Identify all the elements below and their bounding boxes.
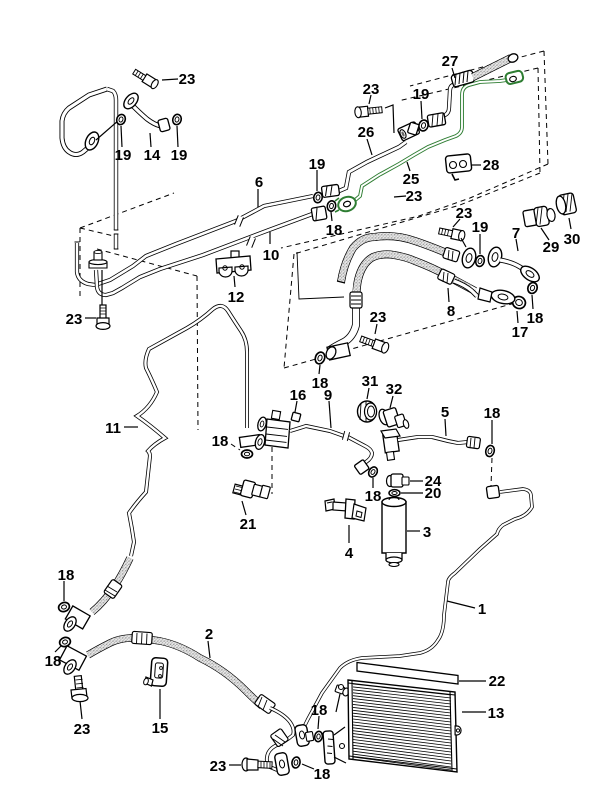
- svg-text:19: 19: [472, 219, 489, 236]
- svg-text:18: 18: [527, 310, 544, 327]
- svg-text:5: 5: [441, 404, 449, 421]
- svg-text:18: 18: [45, 653, 62, 670]
- svg-text:18: 18: [311, 702, 328, 719]
- svg-text:7: 7: [512, 225, 520, 242]
- svg-text:18: 18: [484, 405, 501, 422]
- svg-text:16: 16: [290, 387, 307, 404]
- svg-text:29: 29: [543, 239, 560, 256]
- svg-text:23: 23: [456, 205, 473, 222]
- svg-text:19: 19: [413, 86, 430, 103]
- svg-text:26: 26: [358, 124, 375, 141]
- svg-text:32: 32: [386, 381, 403, 398]
- svg-text:18: 18: [314, 766, 331, 783]
- svg-text:11: 11: [105, 420, 121, 437]
- svg-text:19: 19: [115, 147, 132, 164]
- svg-text:25: 25: [403, 171, 420, 188]
- svg-text:23: 23: [66, 311, 83, 328]
- svg-text:3: 3: [423, 524, 431, 541]
- svg-text:23: 23: [406, 188, 423, 205]
- svg-text:22: 22: [489, 673, 506, 690]
- svg-text:23: 23: [210, 758, 227, 775]
- svg-text:23: 23: [363, 81, 380, 98]
- svg-text:2: 2: [205, 626, 213, 643]
- svg-text:28: 28: [483, 157, 500, 174]
- svg-text:13: 13: [488, 705, 505, 722]
- svg-text:23: 23: [74, 721, 91, 738]
- svg-text:21: 21: [240, 516, 257, 533]
- svg-text:12: 12: [228, 289, 245, 306]
- svg-text:31: 31: [362, 373, 379, 390]
- svg-text:18: 18: [58, 567, 75, 584]
- svg-text:19: 19: [309, 156, 326, 173]
- svg-text:18: 18: [326, 222, 343, 239]
- svg-text:6: 6: [255, 174, 263, 191]
- svg-text:23: 23: [179, 71, 196, 88]
- svg-text:20: 20: [425, 485, 442, 502]
- svg-text:23: 23: [370, 309, 387, 326]
- svg-text:4: 4: [345, 545, 354, 562]
- svg-text:18: 18: [365, 488, 382, 505]
- svg-text:27: 27: [442, 53, 459, 70]
- svg-text:9: 9: [324, 387, 332, 404]
- svg-text:30: 30: [564, 231, 581, 248]
- svg-text:1: 1: [478, 601, 486, 618]
- svg-text:10: 10: [263, 247, 280, 264]
- svg-text:14: 14: [144, 147, 161, 164]
- svg-text:15: 15: [152, 720, 169, 737]
- svg-text:18: 18: [212, 433, 229, 450]
- svg-text:19: 19: [171, 147, 188, 164]
- svg-text:17: 17: [512, 324, 529, 341]
- svg-text:8: 8: [447, 303, 455, 320]
